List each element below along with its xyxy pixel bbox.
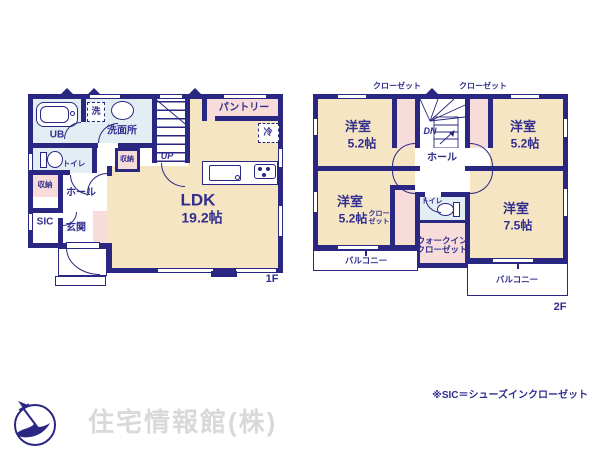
window: [563, 119, 568, 137]
wall: [107, 166, 112, 176]
room-label-bed-tr: 洋室: [510, 120, 536, 134]
window: [313, 192, 318, 212]
sink-icon: [111, 101, 134, 120]
gable-marker: [188, 88, 202, 95]
window: [338, 94, 366, 99]
room-label-bed-tl: 洋室: [345, 120, 371, 134]
room-label-bed-br-size: 7.5帖: [504, 219, 533, 232]
wall: [92, 147, 97, 173]
gable-marker: [60, 88, 74, 95]
balcony-rail-tick: [517, 263, 519, 269]
stairs-down-label: DN: [424, 127, 437, 137]
gable-marker: [425, 88, 439, 95]
bathtub-icon: [40, 106, 69, 123]
window: [28, 154, 33, 170]
entrance-step-strip: [93, 211, 107, 246]
wall: [28, 143, 98, 148]
wall: [58, 173, 63, 213]
room-label-bed-tl-size: 5.2帖: [348, 137, 377, 150]
room-label-washroom: 洗面所: [107, 126, 137, 137]
window-sill: [211, 271, 237, 277]
wall: [420, 220, 465, 223]
closet-top-left: [397, 99, 415, 148]
wall: [465, 192, 470, 268]
stove-icon: [254, 164, 276, 179]
room-label-ldk-size: 19.2帖: [181, 210, 222, 225]
room-label-ub: UB: [50, 130, 64, 141]
toilet-tank-icon: [453, 202, 460, 217]
wall: [313, 94, 318, 250]
front-door: [66, 242, 100, 249]
room-label-toilet: トイレ: [63, 160, 86, 168]
room-label-bed-br: 洋室: [503, 202, 529, 216]
room-label-bed-bl-size: 5.2帖: [339, 212, 368, 225]
window: [224, 94, 266, 99]
closet-label-small: クロー ゼット: [369, 210, 390, 225]
toilet-tank-icon: [40, 152, 47, 168]
window: [278, 206, 283, 236]
room-label-pantry: パントリー: [219, 103, 270, 114]
room-label-hall: ホール: [66, 188, 96, 199]
wall: [215, 116, 279, 121]
wall: [415, 94, 420, 148]
wall: [392, 99, 397, 148]
bathtub-faucet-icon: [70, 111, 75, 116]
toilet-bowl-icon: [47, 151, 63, 168]
window: [563, 189, 568, 216]
window: [511, 94, 539, 99]
window: [313, 119, 318, 135]
wic-label-line2: クローゼット: [416, 245, 467, 255]
room-label-toilet-2f: トイレ: [422, 198, 443, 206]
floor-label-1f: 1F: [266, 273, 279, 285]
closet-bed-bl: [395, 190, 415, 243]
balcony-right-label: バルコニー: [496, 275, 538, 284]
room-label-bed-tr-size: 5.2帖: [511, 137, 540, 150]
window: [278, 149, 283, 167]
kitchen-faucet-icon: [235, 175, 240, 180]
wall: [28, 208, 63, 213]
stairs-up-label: UP: [161, 152, 174, 162]
room-label-ldk: LDK: [181, 192, 216, 211]
balcony-left-label: バルコニー: [345, 256, 387, 265]
stove-burner-icon: [258, 167, 262, 171]
room-label-fridge: 冷: [263, 128, 272, 138]
stairs-down-2f: [420, 99, 465, 148]
sic-note: ※SIC＝シューズインクローゼット: [432, 386, 588, 401]
gable-marker: [87, 88, 101, 95]
closet-label: クローゼット: [373, 83, 421, 92]
wall: [415, 263, 470, 268]
porch-step: [55, 276, 106, 286]
window: [160, 94, 182, 99]
room-label-entrance: 玄関: [66, 223, 86, 234]
room-label-storage: 収納: [38, 181, 53, 189]
wall: [28, 170, 70, 175]
room-label-hall-2f: ホール: [427, 153, 457, 164]
wall: [185, 94, 190, 163]
window-sliding: [158, 268, 213, 273]
wall: [81, 98, 86, 122]
floor1-plan: UB 洗 洗面所 パントリー 冷 UP トイレ 収納 収納 ホール SIC 玄関…: [28, 94, 283, 273]
closet-top-right: [470, 99, 488, 148]
wic-label: ウォークイン クローゼット: [416, 237, 467, 256]
stove-burner-icon: [266, 167, 270, 171]
floor-label-2f: 2F: [554, 301, 567, 313]
room-label-bed-bl: 洋室: [337, 195, 363, 209]
floorplan-page: UB 洗 洗面所 パントリー 冷 UP トイレ 収納 収納 ホール SIC 玄関…: [0, 0, 600, 450]
wall: [202, 94, 207, 121]
stove-burner-icon: [262, 173, 266, 177]
room-label-washer: 洗: [91, 107, 100, 117]
compass-bird-logo: [8, 398, 62, 448]
wall: [488, 99, 493, 148]
wall: [390, 185, 395, 245]
wall: [152, 94, 157, 163]
company-watermark: 住宅情報館(株): [88, 402, 277, 439]
room-label-sic: SIC: [37, 217, 54, 228]
closet-label-line2: ゼット: [369, 218, 390, 225]
closet-label-line1: クロー: [369, 210, 390, 217]
closet-label: クローゼット: [459, 83, 507, 92]
window: [28, 214, 33, 230]
floor2-plan: クローゼット クローゼット 洋室 5.2帖 洋室 5.2帖 DN ホール 洋室 …: [313, 94, 568, 273]
wall: [465, 94, 470, 148]
room-label-storage: 収納: [120, 156, 134, 164]
